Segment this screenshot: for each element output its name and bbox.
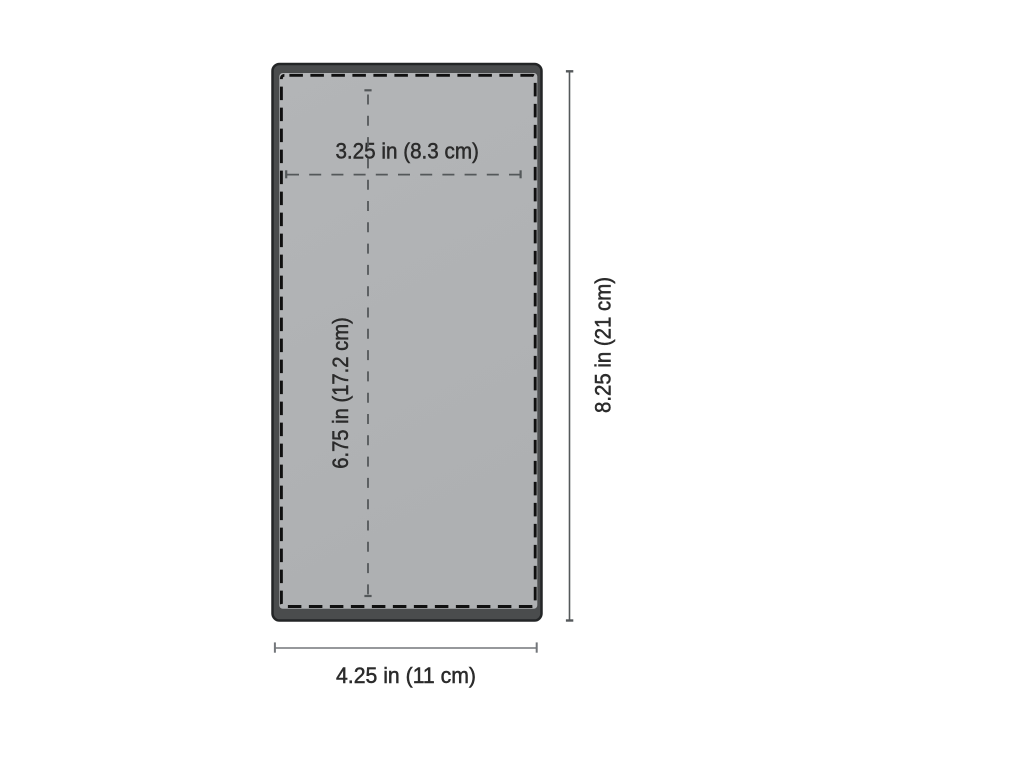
svg-text:4.25 in (11 cm): 4.25 in (11 cm) bbox=[336, 663, 476, 688]
svg-text:3.25 in (8.3 cm): 3.25 in (8.3 cm) bbox=[335, 139, 479, 164]
svg-text:8.25 in (21 cm): 8.25 in (21 cm) bbox=[591, 277, 616, 413]
svg-text:6.75 in (17.2 cm): 6.75 in (17.2 cm) bbox=[328, 317, 353, 469]
